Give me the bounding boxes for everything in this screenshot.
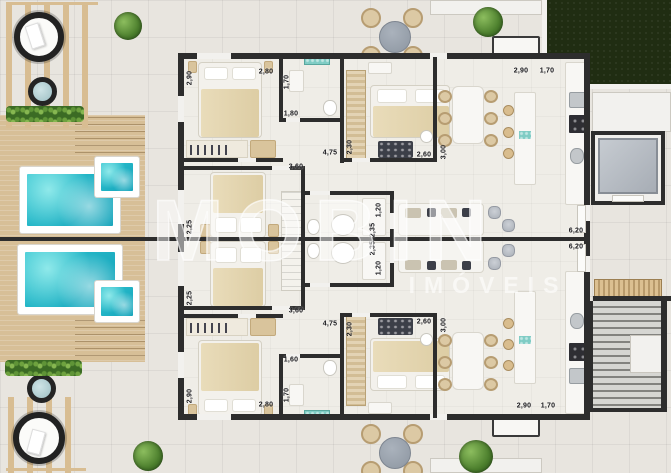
dimension-label: 3,00: [441, 145, 448, 159]
dimension-label: 2,80: [259, 69, 273, 76]
dimension-label: 2,35: [370, 223, 377, 237]
dimension-labels-layer: 2,802,901,701,804,753,602,302,603,002,90…: [0, 0, 671, 473]
dimension-label: 2,80: [259, 402, 273, 409]
dimension-label: 2,35: [370, 241, 377, 255]
dimension-label: 2,90: [187, 389, 194, 403]
dimension-label: 3,60: [289, 164, 303, 171]
dimension-label: 2,90: [517, 403, 531, 410]
dimension-label: 1,20: [376, 203, 383, 217]
dimension-label: 4,75: [323, 321, 337, 328]
dimension-label: 2,30: [347, 140, 354, 154]
floor-plan-rendering: 2,802,901,701,804,753,602,302,603,002,90…: [0, 0, 671, 473]
dimension-label: 3,60: [289, 308, 303, 315]
dimension-label: 1,70: [541, 403, 555, 410]
dimension-label: 2,25: [187, 291, 194, 305]
dimension-label: 2,30: [347, 322, 354, 336]
dimension-label: 1,70: [284, 388, 291, 402]
dimension-label: 3,00: [441, 318, 448, 332]
dimension-label: 6,20: [569, 244, 583, 251]
dimension-label: 1,70: [540, 68, 554, 75]
dimension-label: 2,90: [514, 68, 528, 75]
dimension-label: 2,60: [417, 152, 431, 159]
dimension-label: 6,20: [569, 228, 583, 235]
dimension-label: 2,90: [187, 71, 194, 85]
dimension-label: 2,60: [417, 319, 431, 326]
dimension-label: 4,75: [323, 150, 337, 157]
dimension-label: 1,70: [284, 75, 291, 89]
dimension-label: 1,60: [284, 357, 298, 364]
dimension-label: 1,80: [284, 111, 298, 118]
dimension-label: 1,20: [376, 261, 383, 275]
dimension-label: 2,25: [187, 220, 194, 234]
